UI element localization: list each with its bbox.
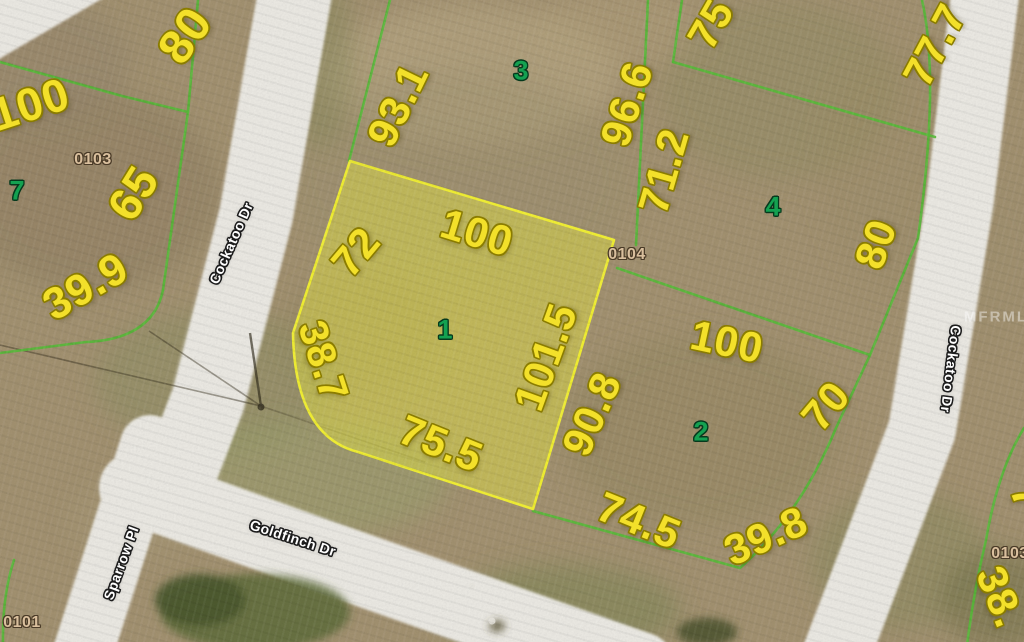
lot-number-2: 2 [693, 419, 708, 446]
dimension-label-100: 100 [687, 314, 767, 370]
dimension-label-72: 72 [324, 220, 387, 284]
dimension-label-39.8: 39.8 [718, 499, 813, 572]
plat-number-0103: 0103 [74, 152, 112, 168]
dimension-label-80: 80 [848, 214, 904, 274]
lot-number-3: 3 [513, 58, 528, 85]
dimension-label-90.8: 90.8 [555, 366, 628, 461]
dimension-label-100: 100 [436, 202, 518, 264]
dimension-label-70: 70 [794, 374, 857, 438]
plat-number-0104: 0104 [608, 247, 646, 263]
plat-number-0101: 0101 [3, 615, 41, 631]
lot-number-7: 7 [9, 178, 24, 205]
street-label-goldfinchdr: Goldfinch Dr [248, 518, 338, 559]
dimension-label-77.7: 77.7 [896, 0, 973, 93]
dimension-label-71.2: 71.2 [632, 124, 696, 218]
dimension-label-74.5: 74.5 [591, 485, 686, 556]
dimension-label-38.7: 38.7 [291, 316, 354, 406]
dimension-label-80: 80 [150, 0, 221, 72]
lot-number-1: 1 [437, 317, 452, 344]
street-label-cockatoodr: Cockatoo Dr [939, 325, 964, 414]
dimension-label-7: 7 [1003, 477, 1024, 515]
mls-watermark: MFRMLS [964, 310, 1024, 325]
dimension-label-38.: 38. [969, 561, 1024, 634]
plat-aerial-map: 801006539.993.196.671.27577.7801007039.8… [0, 0, 1024, 642]
street-label-sparrowpl: Sparrow Pl [101, 524, 141, 601]
dimension-label-75.5: 75.5 [393, 408, 488, 479]
dimension-label-39.9: 39.9 [36, 246, 136, 329]
dimension-label-93.1: 93.1 [360, 57, 435, 152]
street-label-cockatoodr: Cockatoo Dr [207, 200, 255, 286]
dimension-label-75: 75 [681, 0, 742, 56]
lot-number-4: 4 [765, 194, 780, 221]
map-labels-layer: 801006539.993.196.671.27577.7801007039.8… [0, 0, 1024, 642]
plat-number-0103: 0103 [991, 546, 1024, 562]
dimension-label-65: 65 [99, 158, 166, 227]
dimension-label-100: 100 [0, 70, 75, 138]
